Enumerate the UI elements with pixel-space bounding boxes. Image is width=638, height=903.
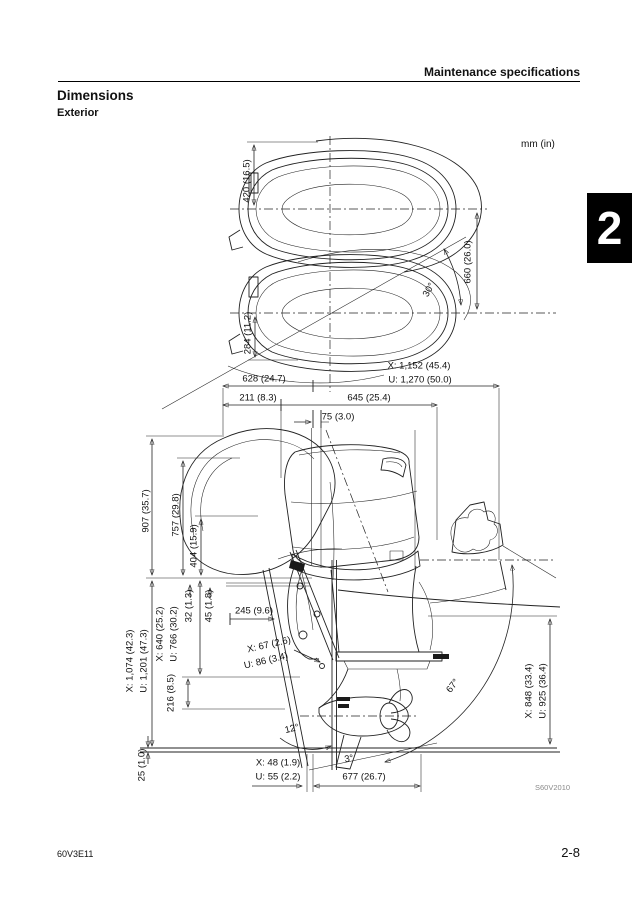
dim-label-u766: U: 766 (30.2) [169, 606, 180, 661]
dim-label-32: 32 (1.3) [184, 590, 195, 623]
dim-label-628: 628 (24.7) [242, 374, 285, 385]
manual-page: { "page": { "header": "Maintenance speci… [0, 0, 638, 903]
dim-label-x848: X: 848 (33.4) [524, 664, 535, 719]
dim-label-x1152: X: 1,152 (45.4) [388, 361, 451, 372]
dim-label-u55: U: 55 (2.2) [256, 772, 301, 783]
dim-label-u1270: U: 1,270 (50.0) [388, 375, 451, 386]
dim-label-x1074: X: 1,074 (42.3) [125, 630, 136, 693]
outboard-dimensions-diagram [0, 0, 638, 903]
dim-label-x640: X: 640 (25.2) [155, 607, 166, 662]
dim-label-420: 420 (16.5) [242, 159, 253, 202]
dim-label-u925: U: 925 (36.4) [538, 663, 549, 718]
dim-label-216: 216 (8.5) [166, 674, 177, 712]
dim-label-trim-3: 3° [344, 753, 355, 765]
dim-label-45: 45 (1.8) [204, 590, 215, 623]
dim-label-404: 404 (15.9) [189, 524, 200, 567]
dim-label-25: 25 (1.0) [137, 749, 148, 782]
dim-label-757: 757 (29.8) [171, 493, 182, 536]
dim-label-284: 284 (11.2) [243, 312, 254, 355]
dim-label-211: 211 (8.3) [239, 393, 276, 404]
dim-label-u1201: U: 1,201 (47.3) [139, 629, 150, 692]
dim-label-75: 75 (3.0) [322, 412, 355, 423]
dim-label-660: 660 (26.0) [463, 240, 474, 283]
dim-label-x48: X: 48 (1.9) [256, 758, 300, 769]
dim-label-245: 245 (9.6) [235, 606, 273, 617]
dim-label-645: 645 (25.4) [347, 393, 390, 404]
dim-label-907: 907 (35.7) [141, 489, 152, 532]
dim-label-677: 677 (26.7) [342, 772, 385, 783]
